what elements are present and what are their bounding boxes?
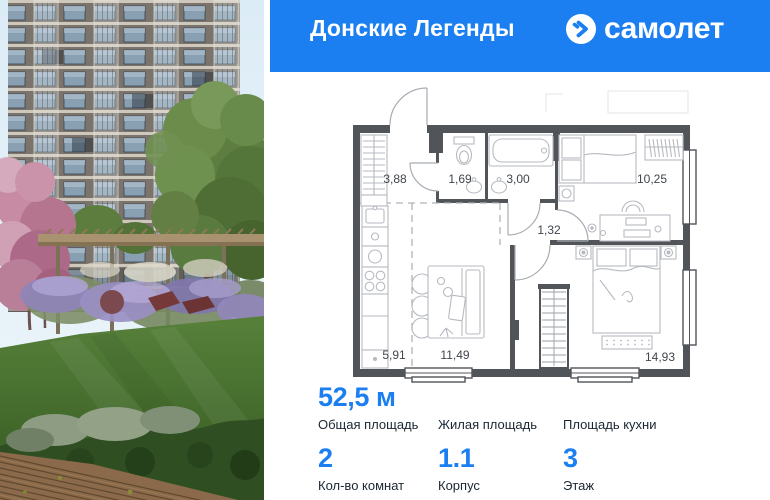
samolet-logo-icon [566, 14, 596, 44]
samolet-logo: самолет [566, 12, 724, 46]
building-value: 1.1 [438, 444, 474, 472]
bathtub [489, 135, 553, 166]
room-area-hallway: 3,88 [383, 172, 407, 186]
kitchen-area-label: Площадь кухни [563, 417, 656, 432]
desk [600, 215, 670, 241]
header-bar: Донские Легенды самолет [270, 0, 770, 72]
radiator [559, 186, 574, 201]
bed-bench [602, 336, 652, 349]
bed-single [559, 135, 636, 183]
sofa [428, 266, 484, 338]
room-area-corridor: 1,32 [537, 223, 561, 237]
building-photo [0, 0, 264, 500]
bed-double [593, 246, 660, 333]
building-label: Корпус [438, 478, 480, 493]
desk-chair [622, 201, 644, 212]
neighbor-outline [546, 91, 688, 113]
toilet-wc [454, 137, 474, 165]
project-title: Донские Легенды [310, 15, 515, 42]
room-area-bathroom: 3,00 [506, 172, 530, 186]
total-area-label: Общая площадь [318, 417, 418, 432]
samolet-logo-text: самолет [604, 12, 724, 46]
hall-wardrobe [361, 135, 387, 206]
wardrobe-rail [645, 135, 683, 160]
room-area-toilet: 1,69 [448, 172, 472, 186]
ventilation-shaft [538, 284, 570, 368]
room-area-bedroom: 10,25 [637, 172, 667, 186]
kitchen-units [362, 206, 388, 368]
room-count-label: Кол-во комнат [318, 478, 404, 493]
floor-plan: 3,88 1,69 3,00 10,25 1,32 5,91 11,49 14,… [340, 80, 770, 400]
floor-label: Этаж [563, 478, 594, 493]
floor-value: 3 [563, 444, 578, 472]
doors [390, 88, 588, 280]
entrance-door [390, 88, 427, 125]
room-area-master-bedroom: 14,93 [645, 350, 675, 364]
total-area-value: 52,5 м [318, 383, 396, 411]
living-area-label: Жилая площадь [438, 417, 537, 432]
room-area-kitchen: 5,91 [382, 348, 406, 362]
room-area-living-room: 11,49 [440, 348, 469, 362]
room-count-value: 2 [318, 444, 333, 472]
listing-card: Донские Легенды самолет [0, 0, 770, 500]
